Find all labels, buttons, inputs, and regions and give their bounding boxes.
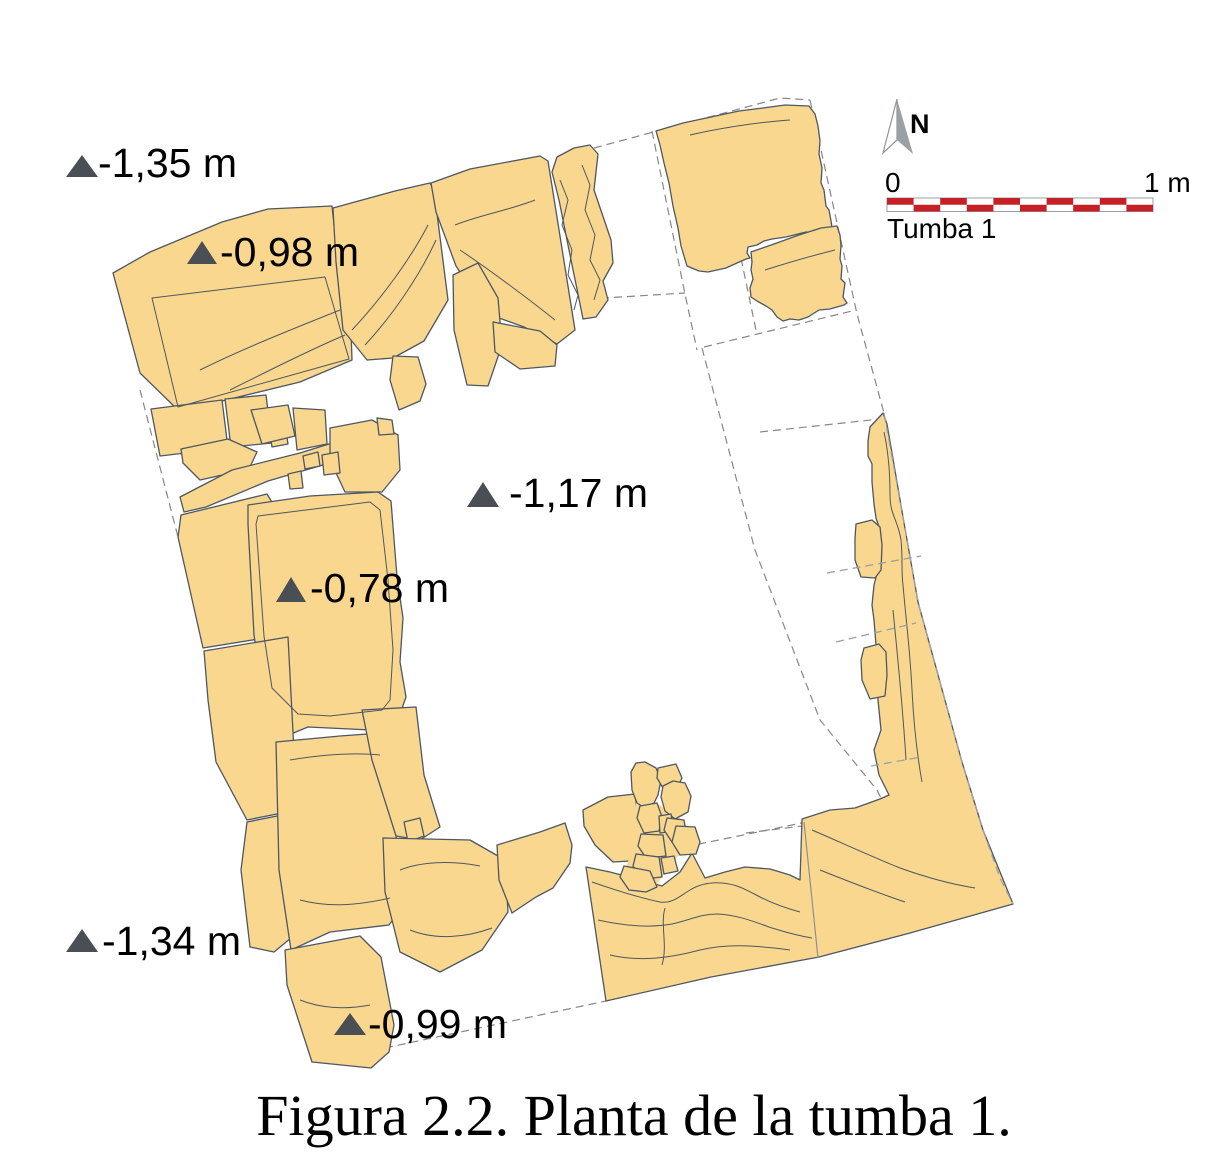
svg-text:0: 0: [885, 167, 901, 198]
svg-text:-1,34 m: -1,34 m: [102, 918, 241, 964]
svg-text:-0,98 m: -0,98 m: [220, 229, 359, 275]
svg-text:Tumba 1: Tumba 1: [887, 213, 996, 244]
svg-text:-1,17 m: -1,17 m: [509, 470, 648, 516]
svg-text:N: N: [910, 109, 930, 139]
svg-text:-0,99 m: -0,99 m: [368, 1001, 507, 1047]
svg-text:-1,35 m: -1,35 m: [98, 140, 237, 186]
svg-text:Figura 2.2. Planta de la tumba: Figura 2.2. Planta de la tumba 1.: [256, 1083, 1011, 1148]
svg-text:1 m: 1 m: [1144, 167, 1191, 198]
svg-text:-0,78 m: -0,78 m: [310, 565, 449, 611]
